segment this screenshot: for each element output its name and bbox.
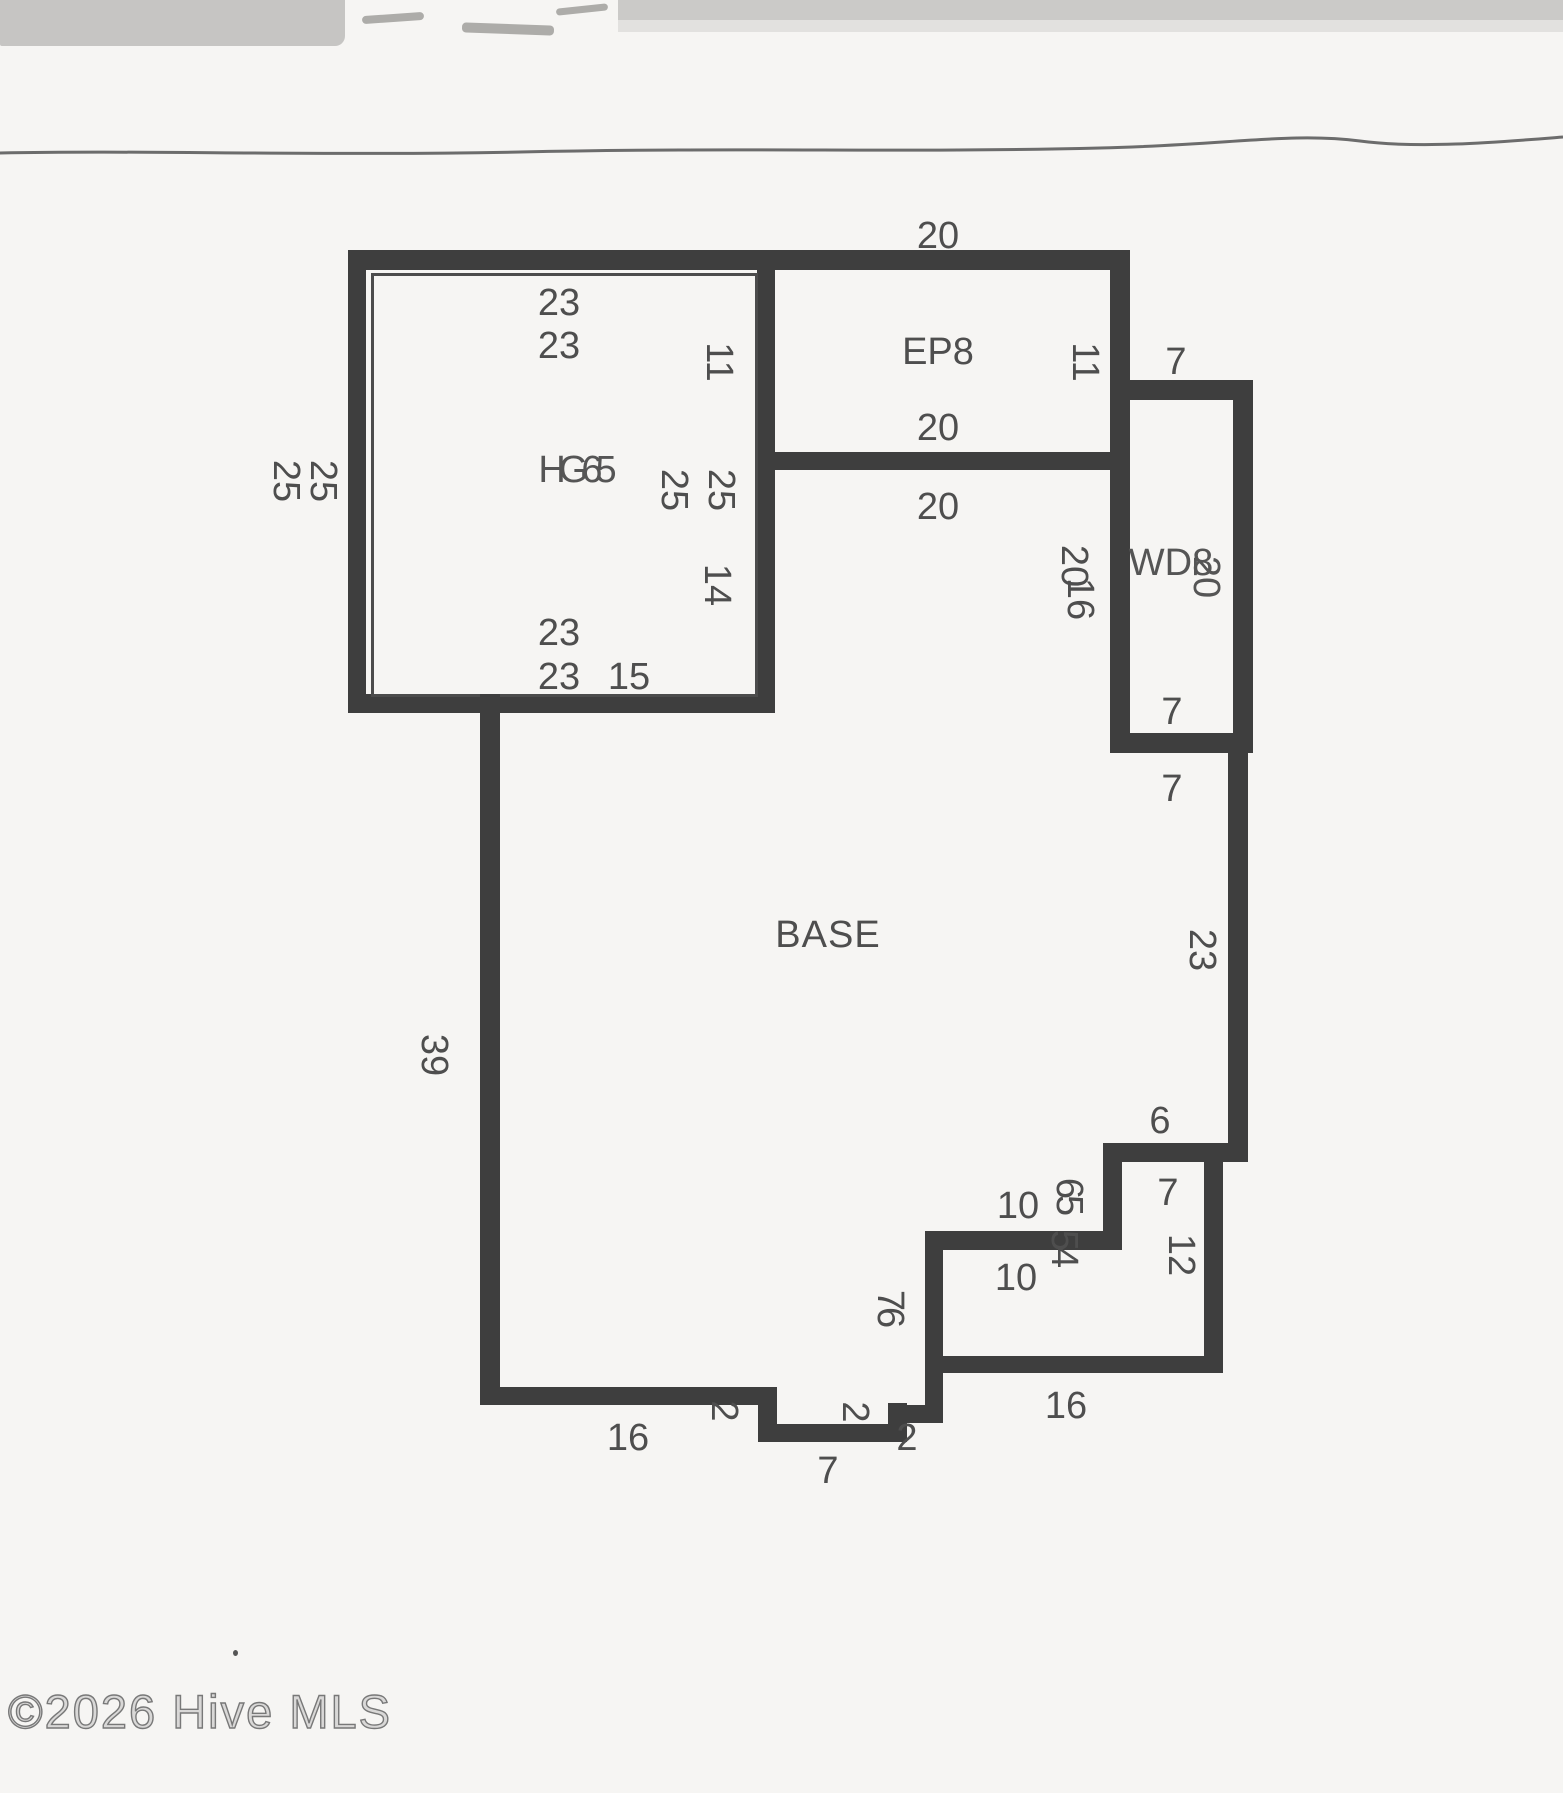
dim-deck-7: 7 [1157, 1174, 1178, 1212]
wall-base-left [480, 694, 500, 1405]
dim-ep8-bottom-outer: 20 [917, 488, 959, 526]
dim-notch-2-left: 2 [705, 1400, 743, 1421]
dim-ep8-bottom-inner: 20 [917, 409, 959, 447]
scan-dot-artifact [233, 1650, 238, 1656]
dim-garage-top-b: 23 [538, 327, 580, 365]
dim-deck-65-overlap: 65 [1050, 1178, 1088, 1212]
scan-smudge [362, 12, 424, 24]
scan-edge-top-right-fade [618, 20, 1563, 32]
dim-deck-76-overlap: 76 [871, 1290, 909, 1324]
area-label-base: BASE [775, 916, 880, 954]
dim-base-right: 23 [1183, 929, 1221, 971]
area-label-ep8: EP8 [902, 333, 974, 371]
dim-deck-54-overlap: 54 [1045, 1230, 1083, 1264]
dim-wd-top: 7 [1165, 343, 1186, 381]
wall-deck-bottom [925, 1356, 1223, 1373]
dim-base-bottom-16: 16 [607, 1419, 649, 1457]
wall-mid-vertical [925, 1231, 943, 1413]
scan-edge-top-left [0, 0, 345, 46]
dim-deck-16: 16 [1045, 1387, 1087, 1425]
dim-garage-bottom-c: 15 [608, 658, 650, 696]
wall-wd-bottom [1110, 733, 1253, 753]
dim-garage-right-upper: 11 [700, 342, 738, 381]
dim-garage-right-b: 25 [702, 469, 740, 511]
dim-ep8-right-height: 11 [1066, 342, 1104, 381]
dim-deck-10-upper: 10 [997, 1187, 1039, 1225]
wall-deck-right [1204, 1152, 1223, 1373]
area-label-garage: HG65 [538, 451, 609, 489]
dim-base-left: 39 [415, 1034, 453, 1076]
dim-notch-2-right: 2 [836, 1401, 874, 1422]
dim-garage-right-lower: 14 [698, 564, 736, 606]
scan-edge-top-right [618, 0, 1563, 20]
scan-smudge [556, 3, 608, 15]
wall-step-top [1103, 1143, 1248, 1162]
dim-garage-left-b: 25 [304, 460, 342, 502]
dim-ep8-top-width: 20 [917, 217, 959, 255]
wall-notch-bottom [758, 1424, 907, 1442]
dim-garage-bottom-b: 23 [538, 658, 580, 696]
dim-wd-side-16: 16 [1061, 578, 1099, 620]
scan-smudge [462, 22, 554, 35]
dim-deck-10-lower: 10 [995, 1259, 1037, 1297]
dim-garage-bottom-a: 23 [538, 614, 580, 652]
wall-garage-left [348, 250, 366, 712]
dim-wd-label-20: 20 [1187, 556, 1225, 598]
dim-wd-below: 7 [1161, 770, 1182, 808]
dim-deck-12: 12 [1162, 1234, 1200, 1276]
dim-garage-left-a: 25 [267, 460, 305, 502]
scanned-floor-plan-page: 20 EP8 11 20 20 23 23 11 25 25 HG65 25 2… [0, 0, 1563, 1793]
wall-garage-right [757, 250, 775, 713]
dim-garage-top-a: 23 [538, 284, 580, 322]
wall-ep8-bottom [775, 452, 1115, 470]
dim-notch-2-step: 2 [896, 1419, 917, 1457]
dim-garage-right-a: 25 [655, 469, 693, 511]
wall-base-right [1228, 753, 1248, 1160]
watermark-text: ©2026 Hive MLS [8, 1684, 392, 1739]
dim-wd-inner-bottom: 7 [1161, 693, 1182, 731]
dim-notch-7: 7 [817, 1452, 838, 1490]
wall-ep8-wd-vertical [1110, 250, 1130, 733]
wall-wd-right [1233, 380, 1253, 753]
wall-deck-top [925, 1231, 1122, 1250]
dim-step-6: 6 [1149, 1102, 1170, 1140]
wall-top [348, 250, 1130, 270]
